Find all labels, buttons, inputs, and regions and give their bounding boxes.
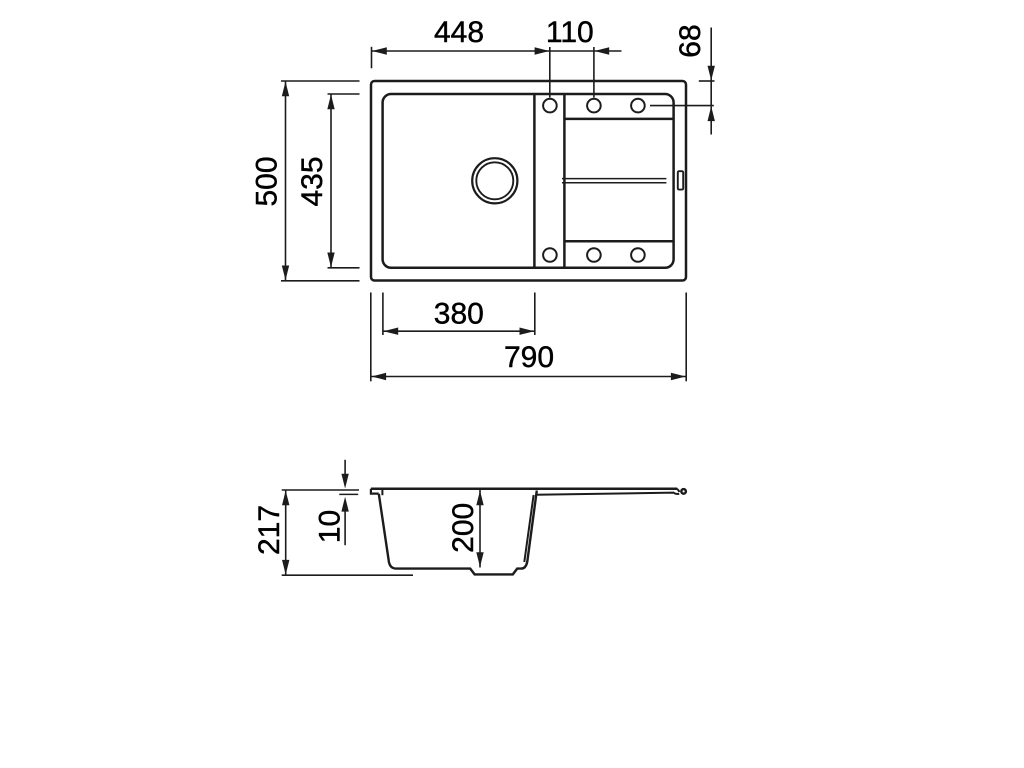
svg-text:10: 10 [314, 510, 347, 543]
svg-text:110: 110 [546, 16, 594, 49]
svg-text:200: 200 [447, 503, 480, 553]
svg-text:448: 448 [434, 16, 484, 49]
svg-text:380: 380 [434, 298, 484, 331]
svg-text:217: 217 [253, 505, 286, 555]
svg-text:790: 790 [504, 341, 554, 374]
svg-text:500: 500 [250, 156, 283, 206]
svg-text:68: 68 [674, 24, 707, 57]
svg-text:435: 435 [296, 156, 329, 206]
